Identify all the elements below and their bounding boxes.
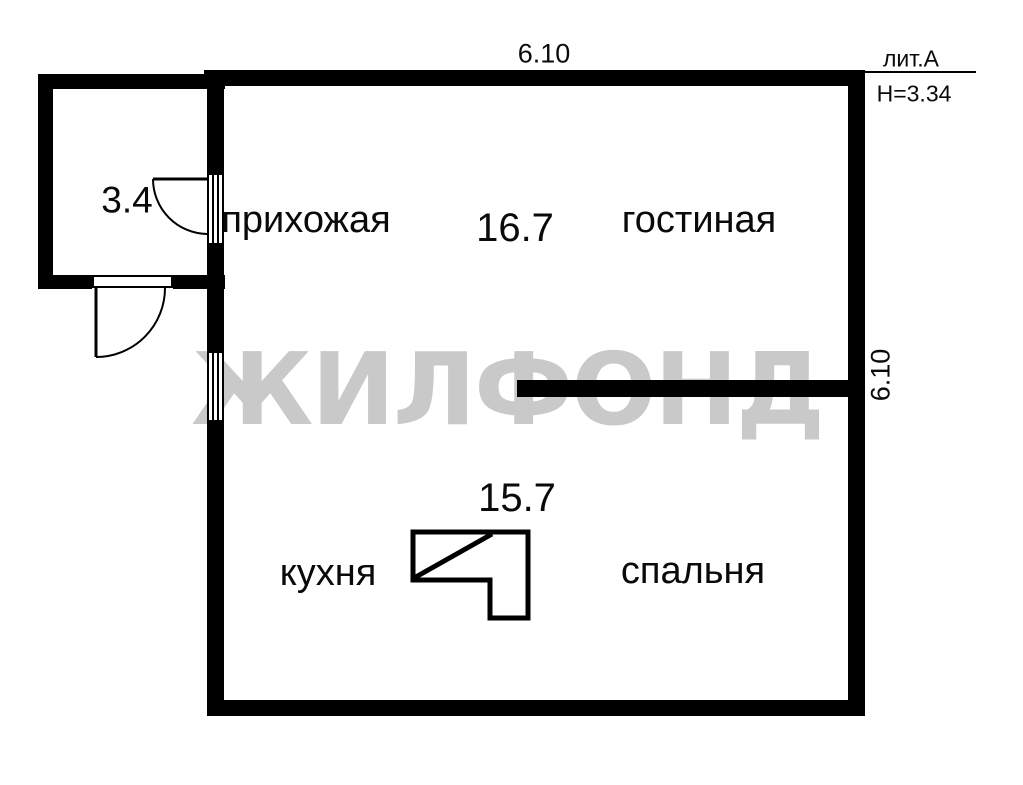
lower-zone-area-value: 15.7: [478, 478, 556, 518]
litera-label: лит.А: [883, 48, 939, 71]
floor-plan: ЖИЛФОНД 6.10 6.10 лит.А H=3.34 3.4 прихо…: [0, 0, 1023, 785]
room-label-kitchen: кухня: [280, 554, 377, 592]
upper-zone-area-value: 16.7: [476, 208, 554, 248]
ceiling-height-label: H=3.34: [877, 83, 952, 106]
porch-area-value: 3.4: [101, 182, 152, 219]
dimension-top-width: 6.10: [518, 41, 571, 68]
room-label-hallway: прихожая: [221, 201, 390, 239]
room-label-bedroom: спальня: [621, 552, 765, 590]
entrance-door-swing-arc: [96, 288, 165, 357]
balcony-door-swing-arc: [153, 179, 207, 234]
dimension-right-height: 6.10: [868, 349, 895, 402]
room-label-living: гостиная: [622, 201, 777, 239]
